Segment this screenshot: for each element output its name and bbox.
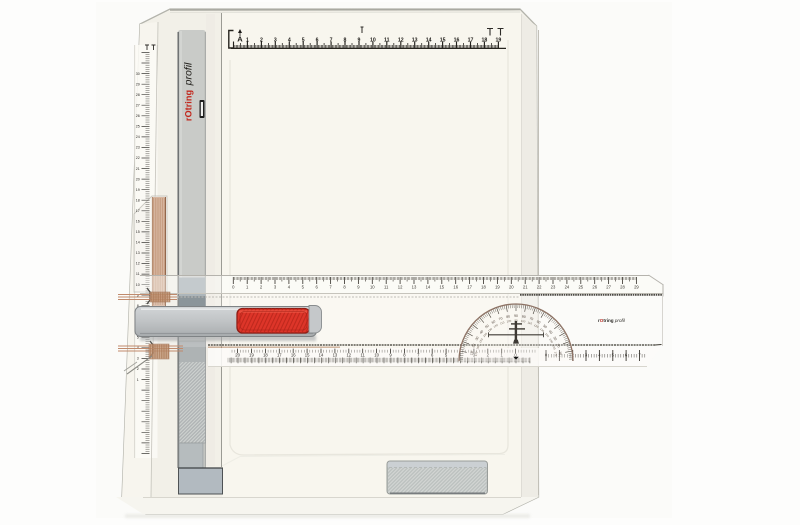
svg-text:28: 28 bbox=[136, 93, 140, 97]
svg-text:19: 19 bbox=[496, 38, 502, 44]
svg-text:13: 13 bbox=[412, 285, 417, 290]
svg-text:20: 20 bbox=[509, 285, 514, 290]
svg-text:12: 12 bbox=[398, 285, 403, 290]
svg-text:15: 15 bbox=[136, 230, 140, 234]
svg-text:23: 23 bbox=[136, 146, 140, 150]
svg-text:16: 16 bbox=[453, 285, 458, 290]
svg-text:29: 29 bbox=[634, 285, 639, 290]
svg-text:23: 23 bbox=[551, 285, 556, 290]
svg-text:10: 10 bbox=[370, 38, 376, 44]
svg-text:1: 1 bbox=[246, 38, 249, 44]
svg-text:5: 5 bbox=[302, 38, 305, 44]
svg-text:rOtring: rOtring bbox=[184, 90, 194, 121]
svg-text:25: 25 bbox=[136, 125, 140, 129]
svg-text:16: 16 bbox=[454, 38, 460, 44]
svg-text:24: 24 bbox=[136, 135, 140, 139]
svg-text:25: 25 bbox=[578, 285, 583, 290]
svg-text:7: 7 bbox=[330, 38, 333, 44]
svg-text:22: 22 bbox=[537, 285, 542, 290]
svg-text:12: 12 bbox=[136, 262, 140, 266]
svg-text:90: 90 bbox=[514, 314, 518, 318]
svg-text:14: 14 bbox=[426, 38, 432, 44]
svg-text:20: 20 bbox=[136, 177, 140, 181]
svg-text:2: 2 bbox=[260, 38, 263, 44]
svg-text:10: 10 bbox=[370, 285, 375, 290]
svg-text:18: 18 bbox=[136, 198, 140, 202]
svg-text:6: 6 bbox=[316, 38, 319, 44]
svg-text:17: 17 bbox=[468, 38, 474, 44]
svg-text:profil: profil bbox=[183, 62, 195, 86]
svg-text:13: 13 bbox=[412, 38, 418, 44]
svg-text:18: 18 bbox=[482, 38, 488, 44]
svg-text:16: 16 bbox=[136, 220, 140, 224]
svg-text:11: 11 bbox=[136, 272, 140, 276]
svg-text:11: 11 bbox=[384, 38, 390, 44]
svg-text:17: 17 bbox=[467, 285, 472, 290]
svg-text:30: 30 bbox=[136, 72, 140, 76]
svg-text:19: 19 bbox=[495, 285, 500, 290]
svg-text:11: 11 bbox=[384, 285, 389, 290]
svg-text:21: 21 bbox=[523, 285, 528, 290]
svg-text:8: 8 bbox=[344, 38, 347, 44]
svg-text:26: 26 bbox=[592, 285, 597, 290]
svg-text:21: 21 bbox=[136, 167, 140, 171]
svg-text:9: 9 bbox=[358, 38, 361, 44]
svg-text:12: 12 bbox=[398, 38, 404, 44]
svg-text:29: 29 bbox=[136, 82, 140, 86]
svg-text:4: 4 bbox=[288, 38, 291, 44]
svg-text:2: 2 bbox=[137, 367, 139, 371]
svg-text:17: 17 bbox=[136, 209, 140, 213]
svg-text:10: 10 bbox=[136, 283, 140, 287]
svg-text:3: 3 bbox=[137, 357, 139, 361]
svg-text:15: 15 bbox=[439, 285, 444, 290]
svg-text:13: 13 bbox=[136, 251, 140, 255]
svg-text:14: 14 bbox=[426, 285, 431, 290]
svg-text:27: 27 bbox=[606, 285, 611, 290]
svg-text:rOtring profil: rOtring profil bbox=[598, 318, 626, 323]
svg-text:24: 24 bbox=[565, 285, 570, 290]
svg-text:22: 22 bbox=[136, 156, 140, 160]
svg-text:18: 18 bbox=[481, 285, 486, 290]
svg-text:19: 19 bbox=[136, 188, 140, 192]
svg-text:27: 27 bbox=[136, 104, 140, 108]
svg-text:26: 26 bbox=[136, 114, 140, 118]
svg-text:28: 28 bbox=[620, 285, 625, 290]
svg-text:1: 1 bbox=[137, 378, 139, 382]
svg-text:3: 3 bbox=[274, 38, 277, 44]
svg-text:14: 14 bbox=[136, 241, 140, 245]
svg-text:15: 15 bbox=[440, 38, 446, 44]
